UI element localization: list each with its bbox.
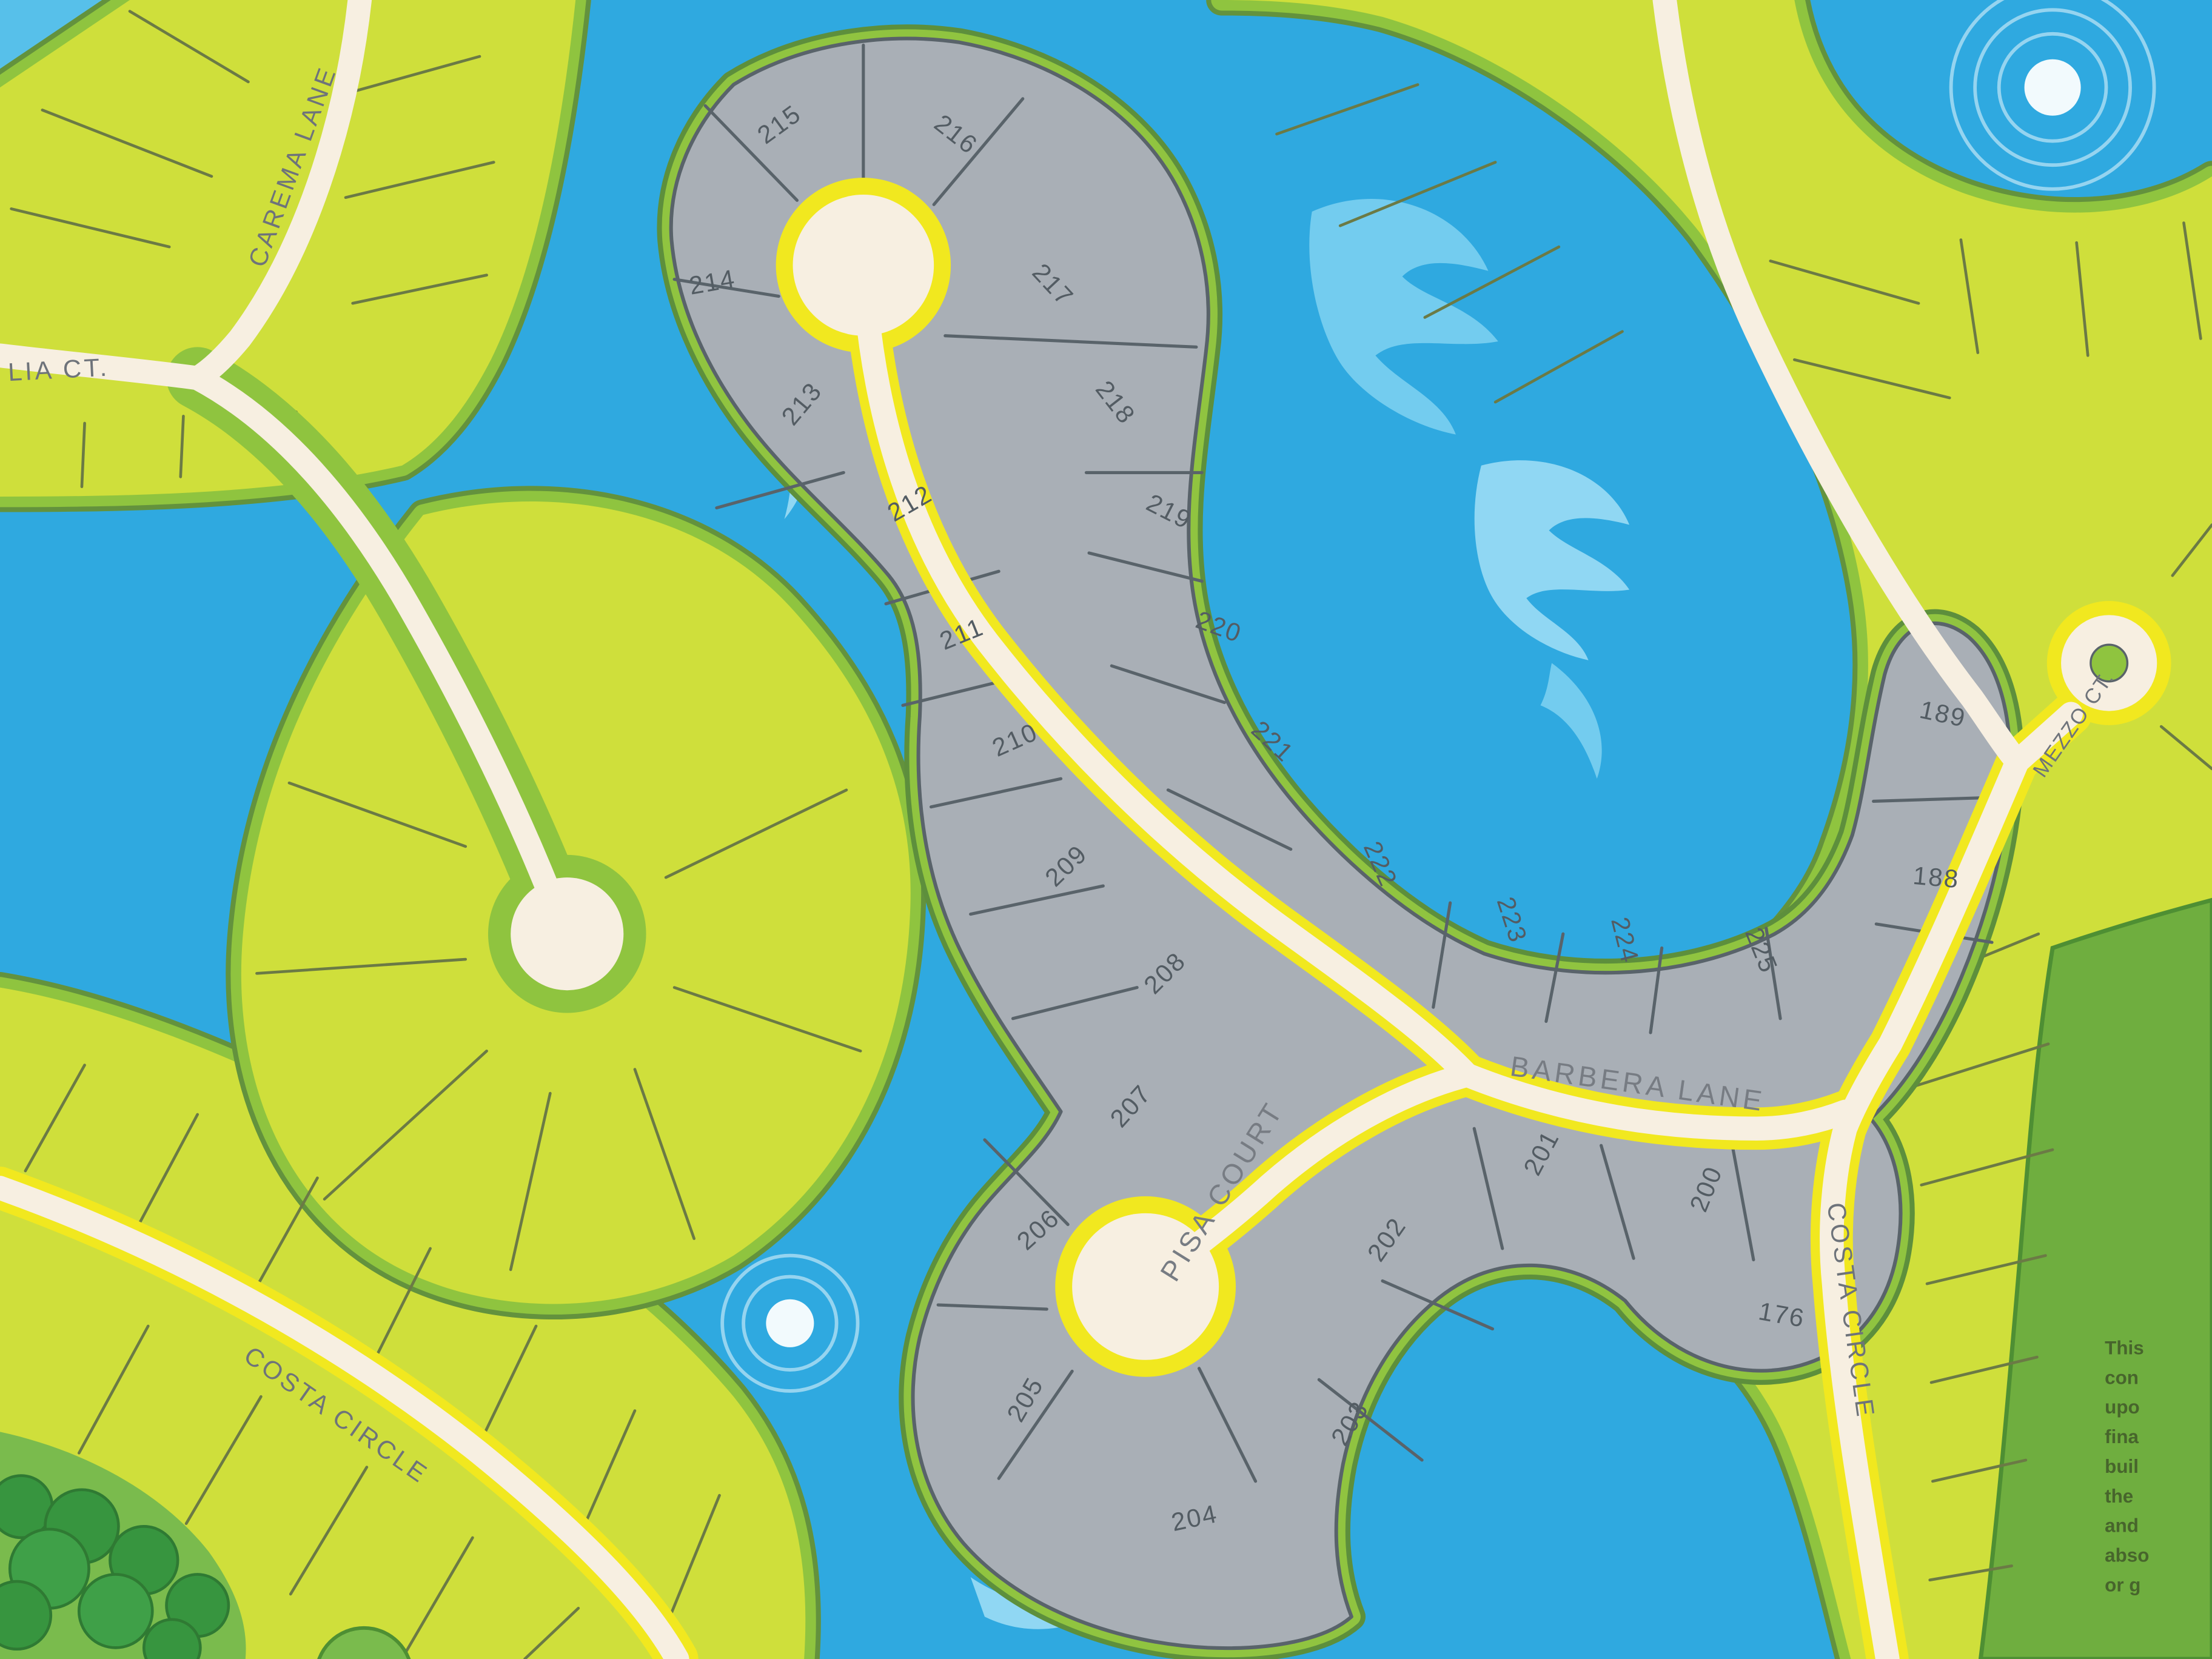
legal-note-line: fina	[2105, 1426, 2139, 1447]
legal-note-line: This	[2105, 1337, 2144, 1358]
legal-note-line: the	[2105, 1486, 2133, 1507]
street-label-lia-ct: LIA CT.	[7, 352, 110, 386]
legal-note-line: con	[2105, 1367, 2139, 1388]
plat-map-canvas: 215 216 214 217 213 218 212 219 211 220 …	[0, 0, 2212, 1659]
legal-note-line: buil	[2105, 1456, 2139, 1477]
lot-label: 188	[1912, 861, 1961, 894]
legal-note-line: upo	[2105, 1396, 2140, 1418]
legal-note-line: and	[2105, 1515, 2139, 1537]
legal-note-line: abso	[2105, 1544, 2149, 1566]
plat-map: 215 216 214 217 213 218 212 219 211 220 …	[0, 0, 2212, 1659]
fountain-icon	[722, 1256, 857, 1391]
legal-note-line: or g	[2105, 1574, 2140, 1595]
